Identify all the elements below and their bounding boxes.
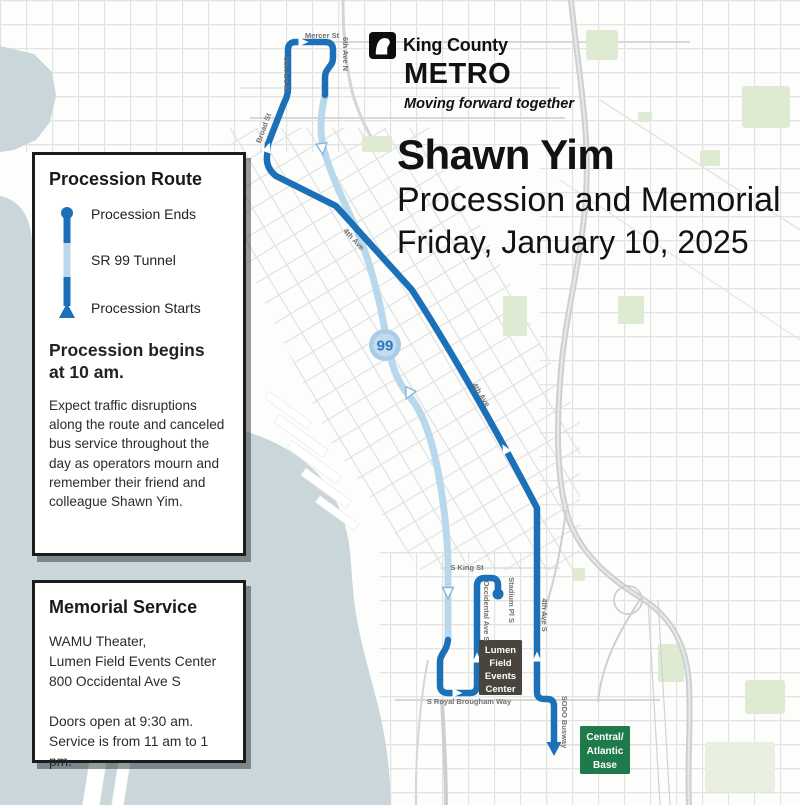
memorial-address-line2: Lumen Field Events Center: [49, 654, 216, 669]
king-county-logo-icon: [369, 32, 396, 59]
memorial-heading: Memorial Service: [49, 597, 229, 618]
procession-route-heading: Procession Route: [49, 169, 229, 190]
lumen-line2: Field: [489, 658, 511, 669]
poster: 99 Lumen Field Events Center Central/ At…: [0, 0, 800, 805]
label-occidental-ave-s: Occidental Ave S: [482, 581, 491, 642]
base-line3: Base: [593, 760, 617, 771]
lumen-line1: Lumen: [485, 645, 516, 656]
label-4th-ave-s: 4th Ave S: [540, 598, 549, 632]
central-atlantic-base-box: Central/ Atlantic Base: [580, 726, 630, 774]
king-county-metro-logo: King County METRO Moving forward togethe…: [369, 32, 574, 112]
procession-begins-heading: Procession begins at 10 am.: [49, 340, 209, 384]
procession-route-box: Procession Route Procession Ends SR 99 T…: [32, 152, 246, 556]
lumen-field-box: Lumen Field Events Center: [479, 640, 522, 695]
memorial-address: WAMU Theater, Lumen Field Events Center …: [49, 632, 229, 692]
memorial-service-time: Service is from 11 am to 1 pm.: [49, 734, 208, 769]
label-6th-ave-n: 6th Ave N: [341, 37, 350, 71]
legend-label-starts: Procession Starts: [91, 300, 201, 316]
procession-end-marker: [493, 589, 504, 600]
procession-body-text: Expect traffic disruptions along the rou…: [49, 396, 229, 512]
route-legend: Procession Ends SR 99 Tunnel Procession …: [49, 204, 229, 322]
label-s-royal-brougham-way: S Royal Brougham Way: [427, 697, 512, 706]
label-stadium-pl-s: Stadium Pl S: [507, 577, 516, 623]
page-subtitle: Procession and Memorial: [397, 183, 781, 217]
memorial-doors-open: Doors open at 9:30 am.: [49, 714, 193, 729]
memorial-address-line1: WAMU Theater,: [49, 634, 146, 649]
memorial-times: Doors open at 9:30 am. Service is from 1…: [49, 712, 229, 772]
metro-tagline: Moving forward together: [404, 96, 574, 112]
base-line1: Central/: [586, 732, 623, 743]
page-title: Shawn Yim: [397, 134, 781, 176]
legend-label-ends: Procession Ends: [91, 206, 196, 222]
title-block: Shawn Yim Procession and Memorial Friday…: [397, 134, 781, 258]
label-s-king-st: S King St: [450, 563, 484, 572]
route-legend-line: [57, 204, 77, 322]
metro-wordmark: METRO: [404, 60, 574, 89]
memorial-service-box: Memorial Service WAMU Theater, Lumen Fie…: [32, 580, 246, 763]
sr99-shield-label: 99: [377, 338, 394, 355]
lumen-line3: Events: [485, 671, 516, 682]
legend-label-tunnel: SR 99 Tunnel: [91, 252, 176, 268]
legend-end-dot: [61, 207, 73, 219]
king-county-wordmark: King County: [403, 35, 508, 56]
sr99-shield: 99: [369, 329, 401, 361]
label-5th-ave-n: 5th Ave N: [282, 57, 291, 91]
legend-start-triangle: [59, 303, 75, 318]
memorial-address-line3: 800 Occidental Ave S: [49, 674, 181, 689]
label-mercer-st: Mercer St: [305, 31, 340, 40]
event-date: Friday, January 10, 2025: [397, 226, 781, 258]
base-line2: Atlantic: [587, 746, 624, 757]
lumen-line4: Center: [485, 684, 515, 695]
label-sodo-busway: SODO Busway: [560, 696, 569, 749]
